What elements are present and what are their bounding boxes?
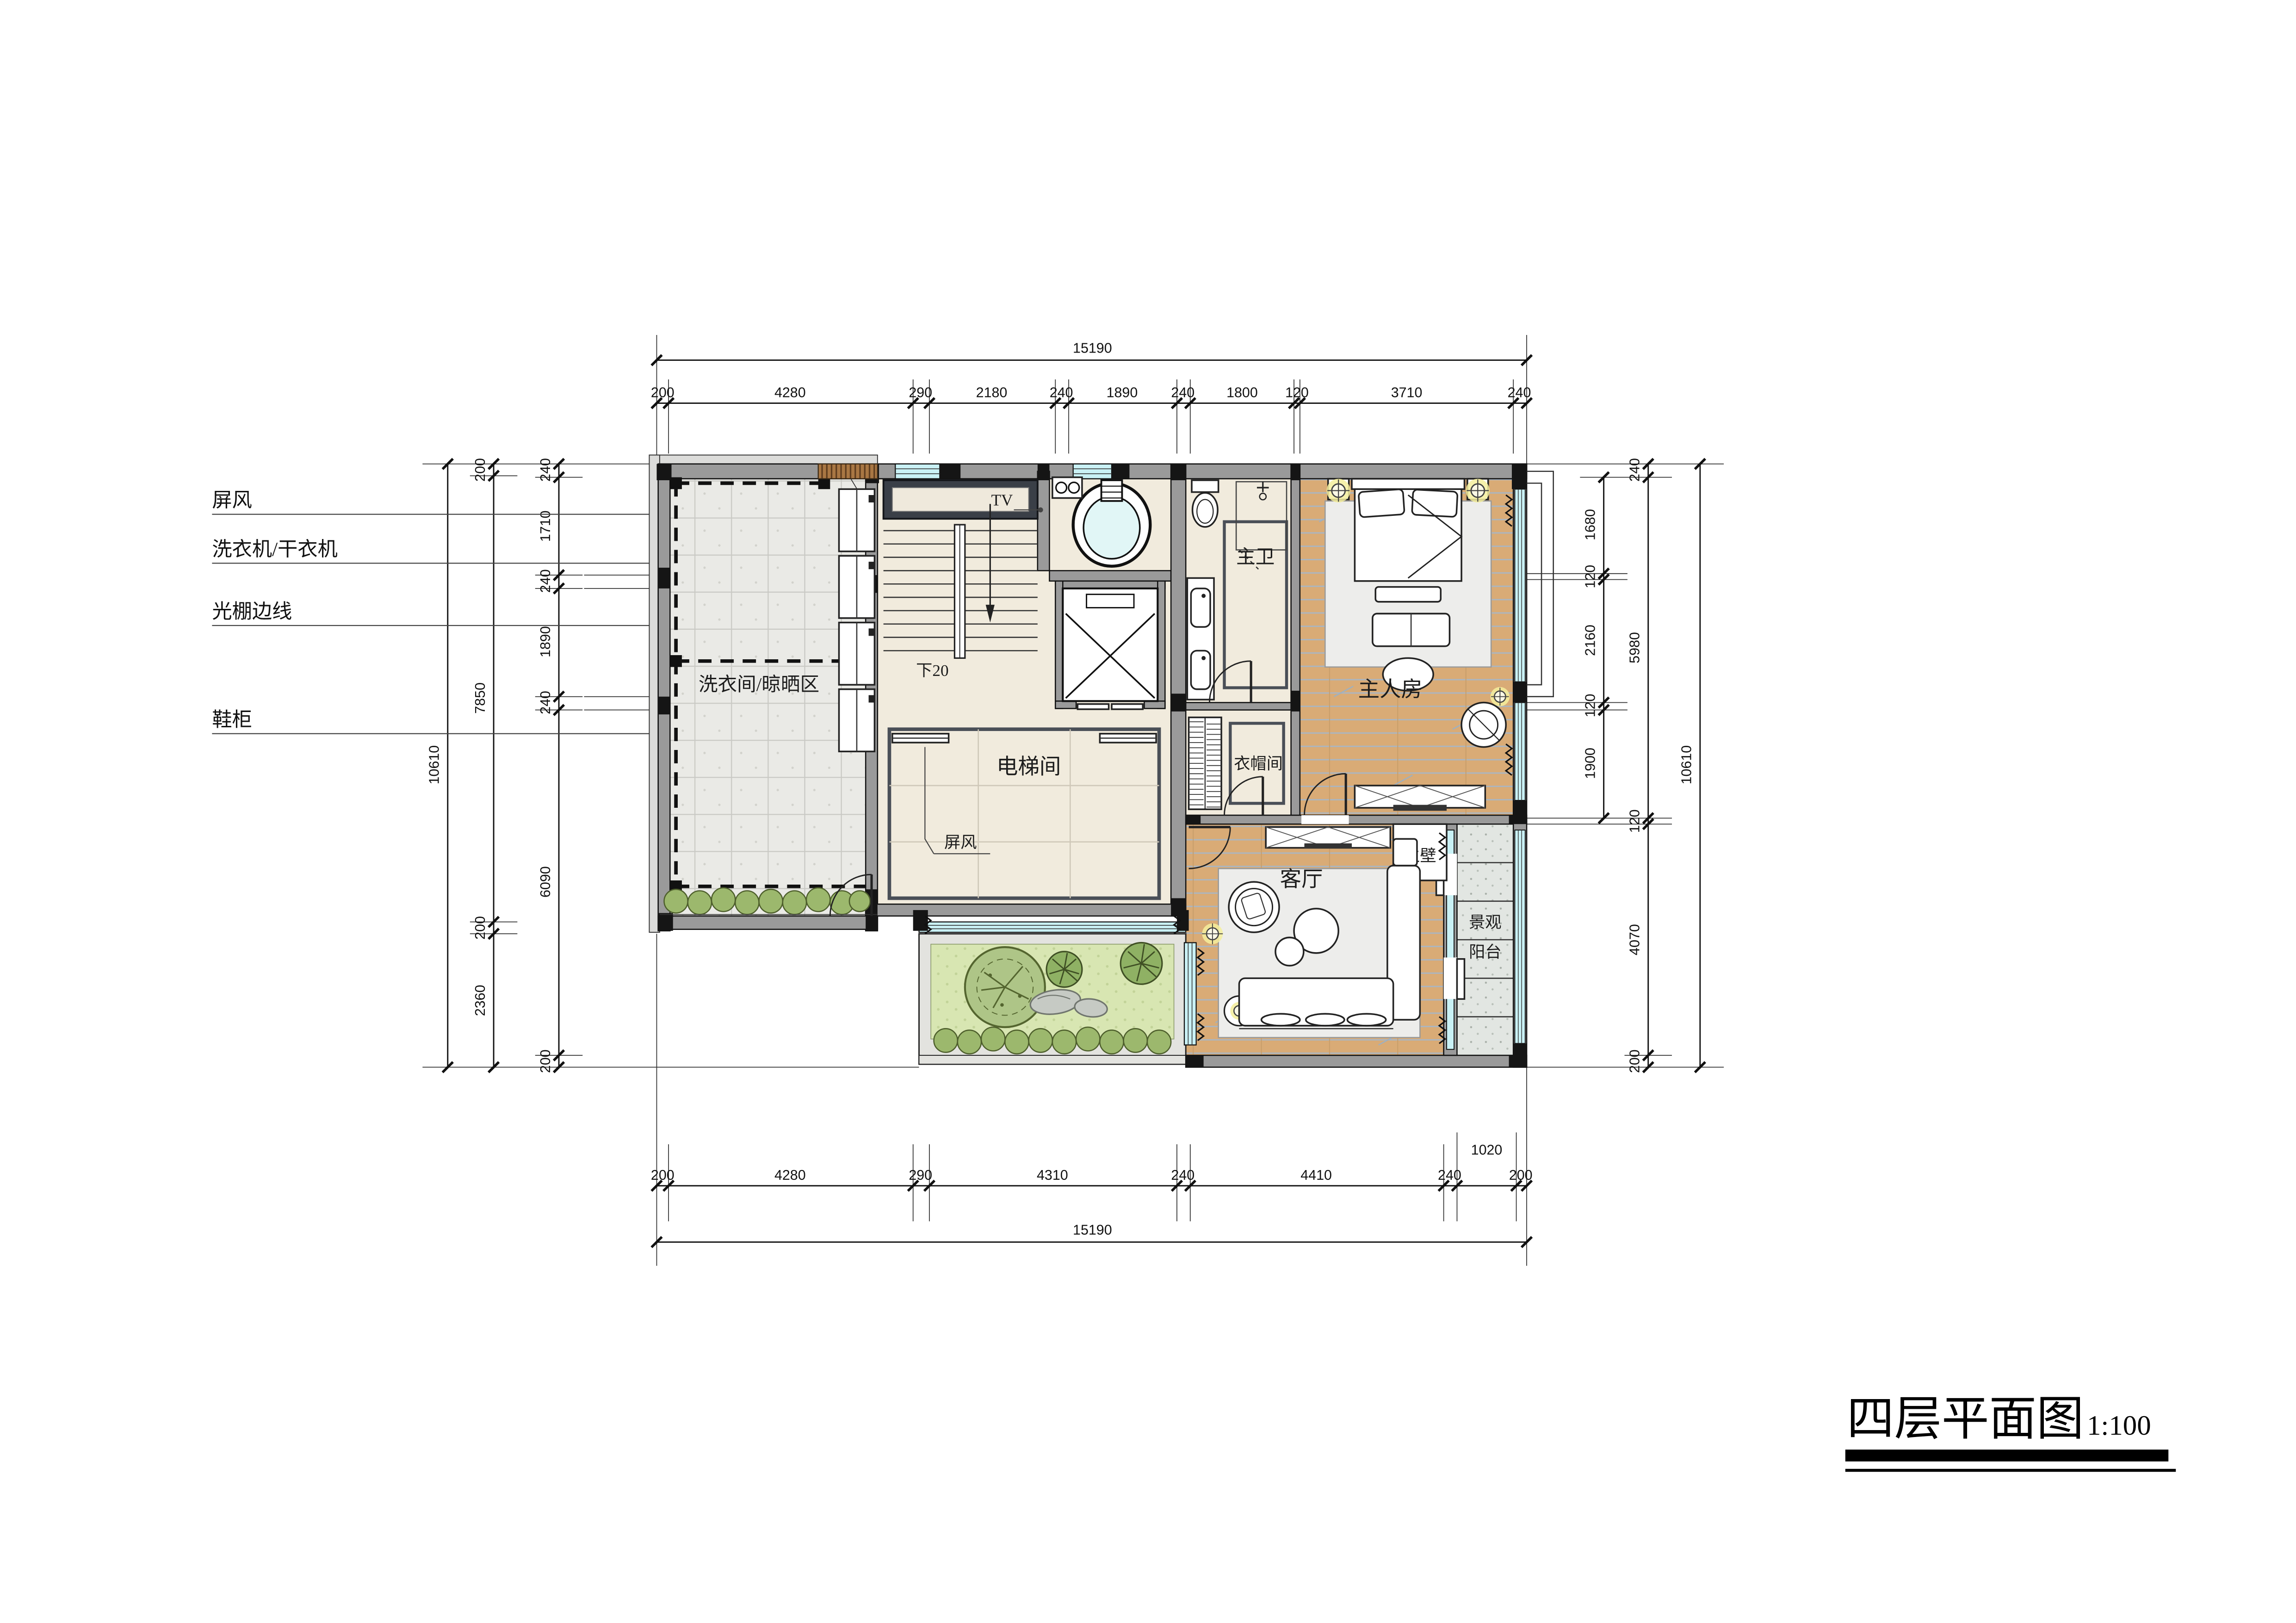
eave-outline (1527, 471, 1553, 697)
dim-bot-0: 200 (651, 1167, 675, 1183)
dim-right-total: 10610 (1679, 745, 1695, 785)
dim-li-2: 240 (538, 569, 553, 593)
dim-bot-7: 1020 (1471, 1142, 1503, 1158)
dimension-right: 10610 1680 120 2160 120 1900 240 5980 12… (1527, 458, 1724, 1073)
garden-edge (919, 1055, 1186, 1064)
wall-bath-bedroom (1291, 464, 1300, 818)
dim-ri-0: 1680 (1582, 509, 1598, 540)
dim-ri-3: 120 (1582, 694, 1598, 718)
dim-bot-6: 240 (1438, 1167, 1461, 1183)
elevator-door-2 (1112, 704, 1143, 709)
dim-rm-4: 200 (1627, 1049, 1643, 1073)
title-block: 四层平面图 1:100 (1845, 1393, 2176, 1472)
dim-rm-0: 240 (1627, 458, 1643, 482)
dim-bot-3: 4310 (1037, 1167, 1068, 1183)
corner-chair (1461, 703, 1506, 747)
dim-li-3: 1890 (538, 626, 553, 657)
window-garden (919, 922, 1186, 932)
room-label-living: 客厅 (1280, 868, 1323, 892)
annotation-washer-dryer: 洗衣机/干衣机 (212, 538, 337, 560)
dim-bottom-total: 15190 (1073, 1222, 1112, 1238)
dim-bot-1: 4280 (774, 1167, 806, 1183)
dim-top-7: 1800 (1226, 385, 1258, 401)
ceiling-light-corner (1491, 687, 1510, 706)
dim-rm-1: 5980 (1627, 632, 1643, 663)
sliding-door-leaf-2 (1457, 959, 1464, 999)
drawing-title: 四层平面图 (1847, 1393, 2084, 1445)
room-label-master-bedroom: 主人房 (1358, 678, 1423, 702)
bed-bench (1375, 587, 1441, 602)
wall-tub-elevator (1049, 570, 1171, 581)
screen-slats (818, 464, 878, 479)
garden-tree-small-2 (1120, 943, 1162, 985)
room-label-master-bath: 主卫 (1236, 546, 1275, 568)
dim-top-9: 3710 (1391, 385, 1423, 401)
dim-rm-2: 120 (1627, 809, 1643, 833)
window-bedroom-east (1515, 489, 1525, 800)
ceiling-light-right (1466, 479, 1490, 502)
dim-top-total: 15190 (1073, 340, 1112, 356)
garden-tree-small-1 (1046, 952, 1082, 987)
dim-li-5: 6090 (538, 866, 553, 898)
sliding-door-gap-2 (1444, 958, 1457, 999)
room-label-laundry: 洗衣间/晾晒区 (699, 674, 819, 695)
dim-top-6: 240 (1171, 385, 1194, 401)
dim-bot-4: 240 (1171, 1167, 1194, 1183)
dim-top-10: 240 (1508, 385, 1531, 401)
ceiling-light-left (1327, 479, 1350, 502)
dim-li-6: 200 (538, 1049, 553, 1073)
garden-tree-large (965, 947, 1045, 1027)
dim-left-total: 10610 (427, 745, 442, 785)
living-tv-cabinet (1266, 827, 1390, 849)
bed (1352, 479, 1464, 581)
laundry-hedge (664, 888, 870, 915)
room-label-cloakroom: 衣帽间 (1234, 755, 1283, 773)
elevator-counterweight (1087, 595, 1134, 608)
balcony-label-2: 阳台 (1469, 943, 1501, 961)
dimension-top: 15190 200 4280 290 2180 240 1890 240 180… (651, 335, 1532, 464)
wall-laundry-bottom (658, 916, 878, 929)
window-living-west (1184, 943, 1196, 1045)
wall-stair-tub (1038, 471, 1050, 571)
wall-bedroom-living (1186, 815, 1527, 824)
dim-top-4: 240 (1050, 385, 1073, 401)
dim-ri-4: 1900 (1582, 748, 1598, 779)
floor-lamp-1 (1202, 923, 1223, 944)
dim-lm-0: 200 (472, 458, 488, 482)
dim-top-8: 120 (1285, 385, 1309, 401)
dim-top-0: 200 (651, 385, 675, 401)
title-underline-thin (1845, 1469, 2176, 1472)
dim-lm-2: 200 (472, 916, 488, 940)
dim-bot-5: 4410 (1300, 1167, 1332, 1183)
wall-bath-cloak (1186, 703, 1291, 710)
dim-top-5: 1890 (1107, 385, 1138, 401)
dim-lm-3: 2360 (472, 985, 488, 1016)
dim-top-1: 4280 (774, 385, 806, 401)
wall-living-bottom (1186, 1055, 1527, 1067)
window-balcony-east (1515, 830, 1525, 1043)
dim-ri-1: 120 (1582, 565, 1598, 588)
annotation-screen: 屏风 (212, 489, 252, 512)
toilet (1192, 480, 1219, 527)
elevator-shaft (1055, 581, 1165, 709)
floor-plan-canvas: 15190 200 4280 290 2180 240 1890 240 180… (0, 0, 2296, 1623)
window-top-1 (895, 464, 940, 479)
room-label-elevator-hall: 电梯间 (996, 755, 1061, 779)
elevator-door-1 (1077, 704, 1108, 709)
swivel-chair (1229, 882, 1279, 932)
dim-li-4: 240 (538, 691, 553, 714)
dim-top-2: 290 (909, 385, 932, 401)
tv-label: TV (991, 491, 1013, 509)
drawing-scale: 1:100 (2087, 1410, 2151, 1441)
dim-bot-2: 290 (909, 1167, 932, 1183)
wall-corridor (1171, 464, 1186, 916)
dim-lm-1: 7850 (472, 682, 488, 714)
annotation-shoe-cabinet: 鞋柜 (212, 709, 252, 731)
hall-screen-label: 屏风 (944, 833, 977, 851)
bedroom-tv-cabinet (1355, 786, 1485, 811)
dim-rm-3: 4070 (1627, 924, 1643, 955)
dim-li-0: 240 (538, 458, 553, 482)
stair-note: 下20 (916, 662, 948, 680)
balcony-label-1: 景观 (1469, 913, 1501, 931)
dim-li-1: 1710 (538, 510, 553, 542)
dim-top-3: 2180 (976, 385, 1008, 401)
annotation-skylight-edge: 光棚边线 (212, 601, 292, 623)
dim-ri-2: 2160 (1582, 625, 1598, 656)
bedroom-door-opening (1301, 815, 1349, 824)
dim-bot-8: 200 (1509, 1167, 1533, 1183)
vanity-double-sink (1187, 578, 1214, 700)
round-table-small (1275, 937, 1304, 966)
title-underline-thick (1845, 1450, 2168, 1462)
